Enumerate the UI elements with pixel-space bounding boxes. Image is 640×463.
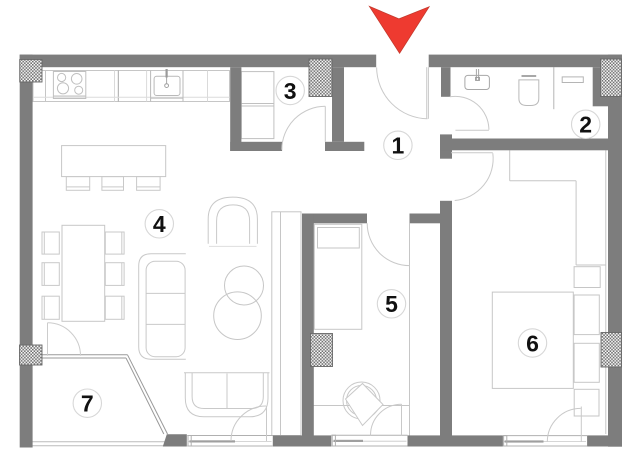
svg-text:6: 6 — [526, 330, 539, 356]
svg-text:4: 4 — [153, 211, 166, 237]
svg-text:1: 1 — [392, 133, 405, 159]
svg-text:2: 2 — [579, 112, 592, 138]
svg-text:5: 5 — [385, 291, 398, 317]
svg-text:7: 7 — [81, 391, 94, 417]
svg-text:3: 3 — [284, 78, 297, 104]
